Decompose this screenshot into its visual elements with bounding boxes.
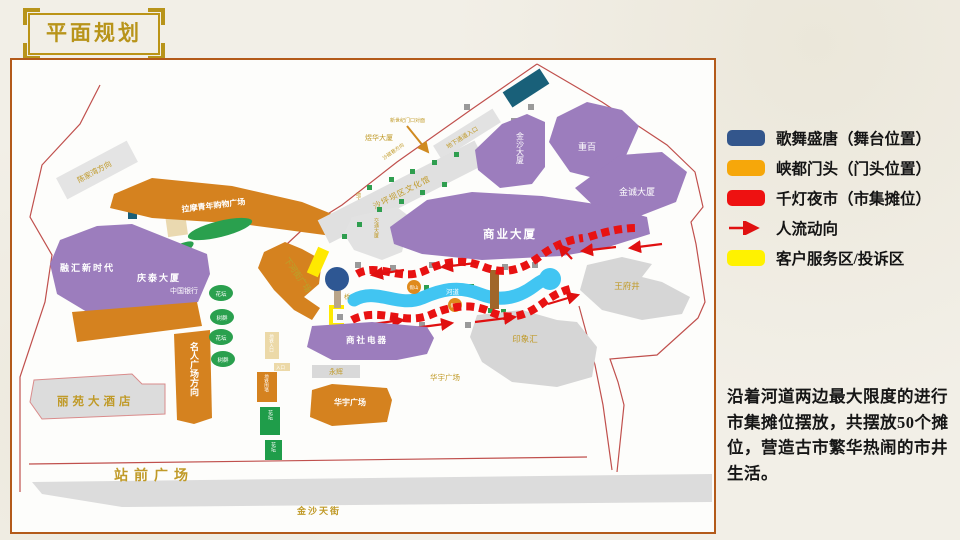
hedao-label: 河道 [446,287,460,296]
building-ronghui-qingtai: 融汇新时代 庆泰大厦 中国银行 [50,224,210,315]
shuqun-label: 树群 [216,314,228,322]
chongbai-label: 重百 [578,141,596,152]
page-title: 平面规划 [30,15,158,53]
ronghui-label: 融汇新时代 [60,262,115,273]
bridge-2 [490,270,499,309]
map-canvas: 金沙天街 站前广场 陈家湾方向 三角碑 拉摩青年购物广场 [12,60,714,532]
wangfujing-label: 王府井 [614,281,640,291]
jinsha-tianjie-label: 金沙天街 [296,505,341,516]
description-text: 沿着河道两边最大限度的进行市集摊位摆放，共摆放50个摊位，营造古市繁华热闹的市井… [727,384,953,486]
metro-entrance-label: 地铁入口 [269,333,275,354]
shangshe-label: 商社电器 [346,335,388,345]
legend: 歌舞盛唐（舞台位置） 峡都门头（门头位置） 千灯夜市（市集摊位） 人流动向 客户… [727,125,955,279]
jinsha-label: 金沙大厦 [516,131,525,164]
yinxianghui-label: 印象汇 [512,334,538,344]
legend-label: 人流动向 [776,217,838,239]
building-liyuan: 丽苑大酒店 [30,374,165,419]
legend-row-service: 客户服务区/投诉区 [727,249,955,267]
huatan-label: 花坛 [267,409,273,421]
service-swatch-icon [727,250,765,266]
huayu-area-label: 华宇广场 [430,372,460,382]
jiaotong-label: 交通大厦 [373,217,379,238]
legend-label: 千灯夜市（市集摊位） [776,187,931,209]
building-xiahejie: 下河街广场 [258,242,322,320]
legend-row-gate: 峡都门头（门头位置） [727,159,955,177]
legend-row-stage: 歌舞盛唐（舞台位置） [727,129,955,147]
legend-row-market: 千灯夜市（市集摊位） [727,189,955,207]
metro-wall-label: 地铁围墙 [264,373,270,394]
huatan-label: 花坛 [215,290,227,298]
legend-label: 峡都门头（门头位置） [776,157,931,179]
stage-swatch-icon [727,130,765,146]
market-swatch-icon [727,190,765,206]
jincheng-label: 金诚大厦 [619,186,655,197]
teal-block [503,68,550,107]
building-wangfujing: 王府井 [580,257,690,320]
site-plan-map: 金沙天街 站前广场 陈家湾方向 三角碑 拉摩青年购物广场 [10,58,716,534]
shangye-label: 商业大厦 [483,227,537,241]
flow-arrow-icon [727,221,765,235]
building-huayu: 华宇广场 [310,384,392,426]
huatan-label: 花坛 [215,334,227,342]
yuhua-label: 煜华大厦 [365,133,393,142]
shuqun-label: 树群 [217,356,229,364]
qingtai-label: 庆泰大厦 [136,272,181,283]
jiashan-label: 假山 [410,284,419,291]
qiao-label: 桥 [344,293,350,301]
legend-label: 客户服务区/投诉区 [776,247,904,269]
slide: 平面规划 金沙天街 站前广场 陈家湾方向 [0,0,960,540]
metro-strips: 地铁入口 入口 地铁围墙 花坛 花坛 [257,332,290,460]
huayu-label: 华宇广场 [334,397,366,407]
title-corner-icon [148,8,165,25]
xinshiji-label: 新世纪门口对面 [390,117,425,124]
flowerbed-markers: 花坛 树群 花坛 树群 [209,285,235,367]
legend-row-flow: 人流动向 [727,219,955,237]
legend-label: 歌舞盛唐（舞台位置） [776,127,931,149]
gate-swatch-icon [727,160,765,176]
huatan-label: 花坛 [270,441,276,453]
station-plaza-label: 站前广场 [114,467,194,483]
liyuan-label: 丽苑大酒店 [57,394,135,408]
yonghui-label: 永辉 [329,367,343,376]
page-title-box: 平面规划 [28,13,160,55]
building-shangshe: 商社电器 [307,322,434,360]
stage-circle [325,267,349,291]
bank-label: 中国银行 [170,286,198,295]
building-yinxianghui: 印象汇 [470,310,597,387]
mingren-label: 名人广场方向 [189,341,200,397]
title-corner-icon [23,8,40,25]
building-yonghui: 永辉 [312,365,360,378]
